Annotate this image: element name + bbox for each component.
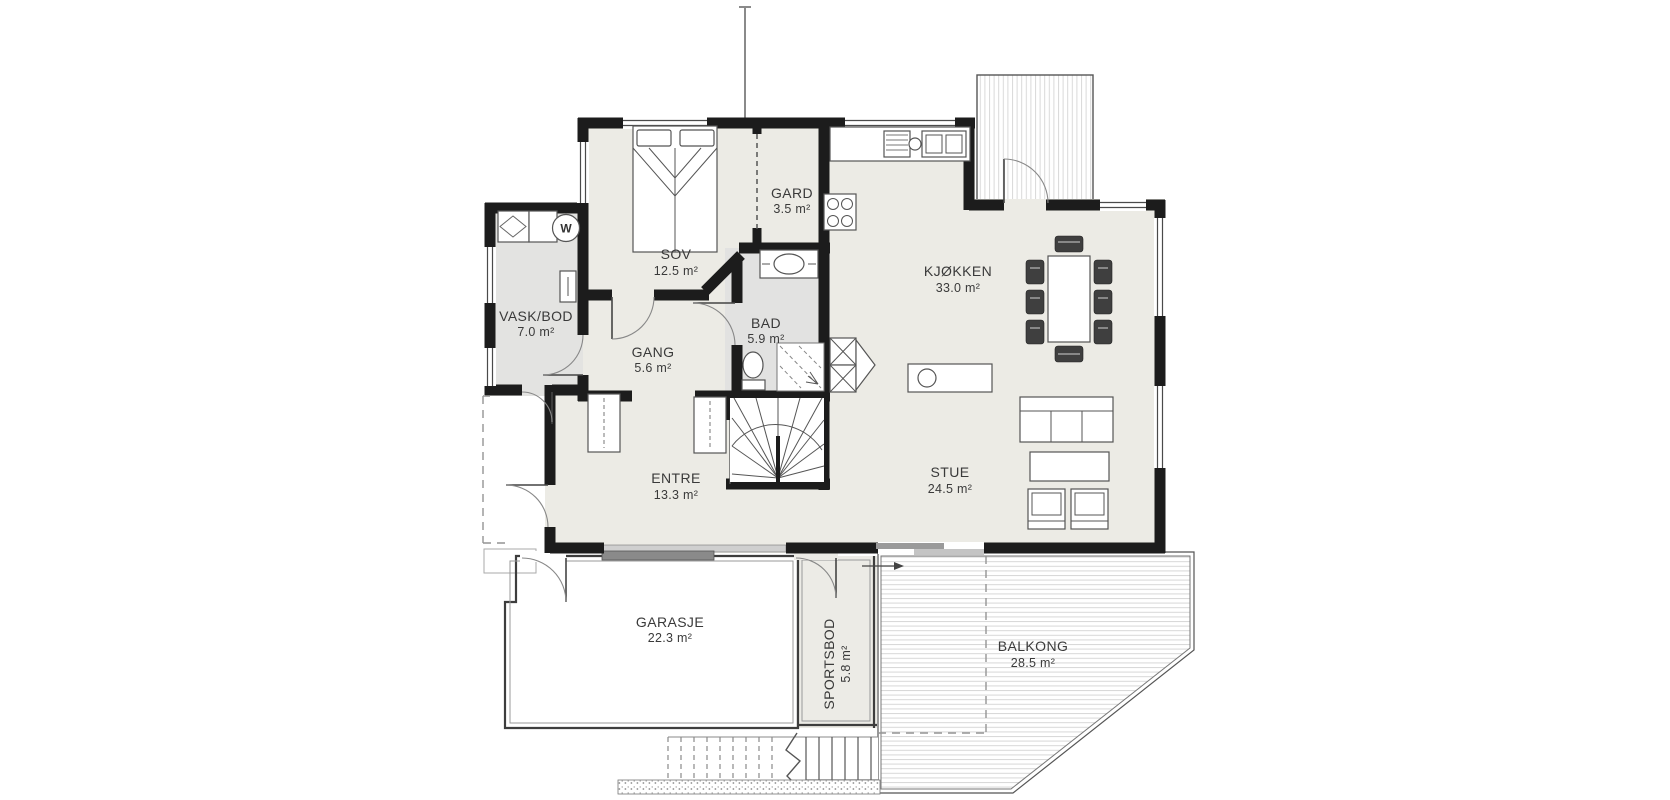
room-label-sportsbod: SPORTSBOD bbox=[821, 618, 837, 709]
toilet-tank bbox=[742, 380, 765, 390]
room-label-sov: SOV bbox=[661, 246, 692, 262]
room-area-gang: 5.6 m² bbox=[634, 361, 671, 375]
window-porch-right bbox=[1100, 199, 1146, 211]
room-label-stue: STUE bbox=[931, 464, 970, 480]
room-area-entre: 13.3 m² bbox=[654, 488, 698, 502]
dining-table bbox=[1048, 256, 1090, 342]
washer-symbol: W bbox=[560, 222, 572, 236]
room-label-vask-bod: VASK/BOD bbox=[499, 308, 573, 324]
gravel-strip bbox=[618, 780, 880, 794]
staircase bbox=[730, 398, 824, 482]
floorplan-svg: W bbox=[0, 0, 1670, 800]
room-area-sportsbod: 5.8 m² bbox=[839, 645, 853, 682]
window-laundry-left-1 bbox=[484, 247, 496, 303]
window-right-top bbox=[1154, 218, 1166, 316]
door-entre-exterior bbox=[506, 485, 548, 527]
coffee-table bbox=[1030, 452, 1109, 481]
room-label-balkong: BALKONG bbox=[998, 638, 1069, 654]
room-label-bad: BAD bbox=[751, 315, 781, 331]
balcony-deck bbox=[878, 552, 1194, 793]
island-sink bbox=[918, 369, 936, 387]
room-label-gang: GANG bbox=[632, 344, 675, 360]
room-label-kjokken: KJØKKEN bbox=[924, 263, 992, 279]
bedroom-furniture bbox=[633, 126, 717, 252]
entrance-porch-deck bbox=[977, 75, 1093, 207]
room-area-stue: 24.5 m² bbox=[928, 482, 972, 496]
room-area-kjokken: 33.0 m² bbox=[936, 281, 980, 295]
room-label-gard: GARD bbox=[771, 185, 813, 201]
floorplan-canvas: W bbox=[0, 0, 1670, 800]
room-label-garasje: GARASJE bbox=[636, 614, 704, 630]
room-area-vask-bod: 7.0 m² bbox=[517, 325, 554, 339]
faucet bbox=[909, 138, 921, 150]
toilet-bowl bbox=[743, 352, 763, 378]
room-area-bad: 5.9 m² bbox=[747, 332, 784, 346]
room-area-sov: 12.5 m² bbox=[654, 264, 698, 278]
room-area-balkong: 28.5 m² bbox=[1011, 656, 1055, 670]
sofa bbox=[1020, 397, 1113, 442]
room-area-garasje: 22.3 m² bbox=[648, 631, 692, 645]
window-sov-left bbox=[577, 142, 589, 203]
window-right-bottom bbox=[1154, 386, 1166, 468]
room-area-gard: 3.5 m² bbox=[773, 202, 810, 216]
window-laundry-left-2 bbox=[484, 348, 496, 386]
basin bbox=[774, 254, 804, 274]
exterior-stairs bbox=[618, 733, 880, 794]
room-label-entre: ENTRE bbox=[651, 470, 700, 486]
chimney-line bbox=[739, 6, 751, 120]
garage-door-panel bbox=[602, 551, 714, 560]
